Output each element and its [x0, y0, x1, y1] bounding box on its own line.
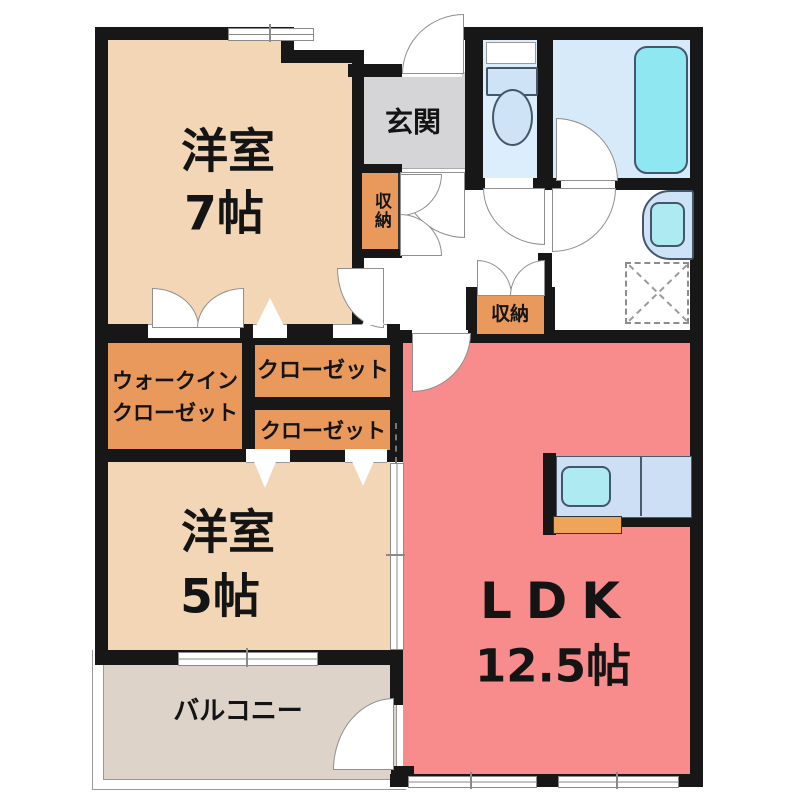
balcony-label: バルコニー: [173, 698, 302, 725]
wic-floor: [108, 343, 242, 449]
room-western7-floor: [108, 40, 288, 324]
window-tick: [269, 24, 271, 42]
window-room5-balcony: [178, 652, 318, 666]
wall-toilet-bottom-a: [465, 178, 485, 190]
partition-dashed-line: [395, 423, 399, 463]
wall-bath-left: [537, 27, 553, 190]
washroom-door-swing: [552, 188, 616, 252]
kitchen-stove-strip: [553, 516, 622, 534]
wall-outer-top-right: [462, 27, 703, 40]
floorplan-canvas: 洋室 7帖 玄関 収納 ウォークイン クローゼット クローゼット クローゼット …: [0, 0, 800, 800]
window-ldk-bottom-left: [408, 776, 537, 788]
front-door-swing: [402, 14, 464, 74]
ldk-size: 12.5帖: [475, 642, 631, 689]
wall-bath-bottom-b: [615, 178, 703, 190]
kitchen-sink: [561, 466, 611, 507]
wic-label-line2: クローゼット: [112, 402, 238, 424]
storage-hall-door-swing-left: [477, 260, 512, 296]
window-ldk-bottom-right: [558, 776, 679, 788]
window-tick: [246, 648, 248, 667]
wic-label-line1: ウォークイン: [112, 370, 238, 392]
washing-machine-pan: [625, 262, 689, 324]
ldk-floor: [403, 343, 690, 774]
window-tick: [386, 554, 405, 556]
bathtub: [634, 46, 688, 174]
toilet-bowl: [492, 89, 533, 146]
kitchen-counter-divider: [640, 456, 642, 516]
room-western7-size: 7帖: [184, 189, 264, 238]
toilet-door-swing: [483, 188, 545, 245]
toilet-shelf: [486, 42, 536, 64]
entrance-label: 玄関: [385, 107, 441, 136]
window-tick: [616, 772, 618, 789]
room7-closet-opening-2: [253, 324, 287, 338]
storage-left-label: 収納: [371, 192, 389, 230]
ldk-label: LDK: [480, 575, 634, 628]
room-western5-label: 洋室: [181, 508, 275, 557]
room-western5-size: 5帖: [180, 572, 260, 621]
closet-lower-label: クローゼット: [260, 420, 386, 442]
wall-toilet-left: [465, 27, 483, 190]
storage-hall-door-swing-right: [510, 260, 545, 296]
storage-hall-label: 収納: [491, 305, 529, 325]
window-tick: [470, 772, 472, 789]
wash-basin-bowl: [650, 202, 685, 247]
closet-upper-label: クローゼット: [257, 359, 389, 382]
wall-outer-right: [690, 27, 703, 787]
window-room7-top: [228, 28, 314, 41]
room-western7-label: 洋室: [181, 127, 275, 176]
sliding-partition-room5-ldk: [390, 463, 404, 650]
